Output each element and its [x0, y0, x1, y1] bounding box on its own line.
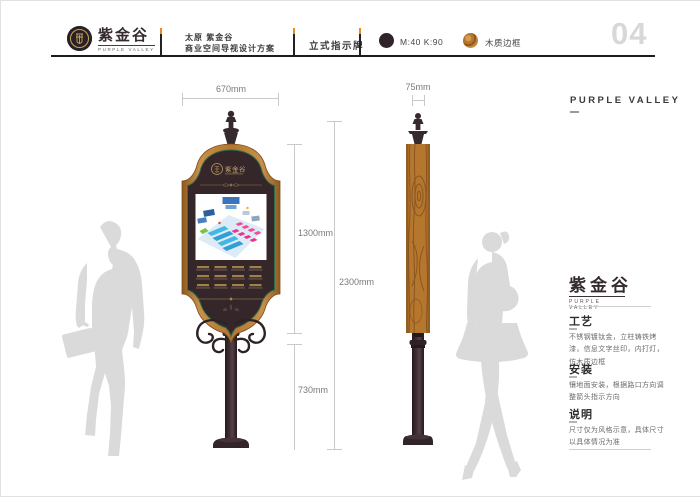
dim-tick: [287, 333, 302, 334]
dim-tick: [287, 344, 302, 345]
project-line1: 太原 紫金谷: [185, 32, 275, 43]
brand-logo-text: 紫金谷 PURPLE VALLEY: [98, 28, 155, 52]
dim-tick: [287, 144, 302, 145]
page-number: 04: [611, 16, 647, 52]
brand-emblem-icon: [67, 26, 92, 51]
sidebar-title: PURPLE VALLEY: [570, 95, 680, 106]
sign-map-panel: [196, 194, 267, 260]
header-rule: [51, 55, 655, 57]
color-swatch-wood: [463, 33, 478, 48]
sidebar-logo-en: PURPLE VALLEY: [569, 296, 625, 311]
dim-label-670mm: 670mm: [206, 84, 256, 94]
sidebar-logo-cn: 紫金谷: [569, 277, 632, 295]
project-title: 太原 紫金谷 商业空间导视设计方案: [185, 32, 275, 54]
project-line2: 商业空间导视设计方案: [185, 43, 275, 54]
section-heading-craft: 工艺: [569, 313, 593, 329]
sidebar-bottom-divider: [569, 449, 651, 450]
dim-tick: [327, 449, 342, 450]
male-silhouette: [57, 215, 167, 493]
dim-line-2300: [334, 121, 335, 450]
sidebar-title-dash: [570, 111, 579, 113]
section-dash: [569, 328, 577, 330]
section-dash: [569, 376, 577, 378]
swatch-wood-label: 木质边框: [485, 37, 521, 49]
design-sheet-page: 紫金谷 PURPLE VALLEY 太原 紫金谷 商业空间导视设计方案 立式指示…: [0, 0, 700, 497]
swatch-dark-label: M:40 K:90: [400, 37, 443, 47]
side-finial: [408, 113, 428, 144]
front-elevation-sign: 紫金谷: [176, 109, 286, 454]
header-divider: [293, 34, 295, 55]
section-body-install: 镶地面安装，根据路口方向调整箭头指示方向: [569, 380, 669, 405]
header-divider: [359, 34, 361, 55]
front-finial: [223, 111, 239, 145]
brand-name-cn: 紫金谷: [98, 28, 155, 44]
brand-name-en: PURPLE VALLEY: [98, 45, 155, 52]
dim-line-670: [182, 98, 279, 99]
side-wood-plank: [406, 144, 430, 333]
dim-line-1300: [294, 144, 295, 334]
dim-line-730: [294, 344, 295, 450]
dim-tick: [182, 93, 183, 106]
female-silhouette: [437, 227, 547, 493]
side-elevation-sign: [401, 111, 435, 456]
section-body-notes: 尺寸仅为风格示意，具体尺寸以具体情况为准: [569, 425, 669, 450]
dim-tick: [278, 93, 279, 106]
dim-label-730mm: 730mm: [297, 385, 329, 395]
dim-tick: [412, 95, 413, 106]
dim-label-2300mm: 2300mm: [338, 277, 375, 287]
dim-tick: [327, 121, 342, 122]
sheet-title: 立式指示牌: [309, 38, 364, 52]
sidebar-divider: [569, 306, 651, 307]
header-divider: [160, 34, 162, 55]
dim-label-1300mm: 1300mm: [297, 228, 334, 238]
section-dash: [569, 421, 577, 423]
sign-brand-text: 紫金谷: [225, 165, 246, 174]
section-heading-install: 安装: [569, 361, 593, 377]
section-heading-notes: 说明: [569, 406, 593, 422]
color-swatch-dark: [379, 33, 394, 48]
side-pole: [403, 333, 433, 445]
brand-logo-emblem: [67, 26, 92, 51]
dim-tick: [424, 95, 425, 106]
dim-label-75mm: 75mm: [396, 82, 440, 92]
